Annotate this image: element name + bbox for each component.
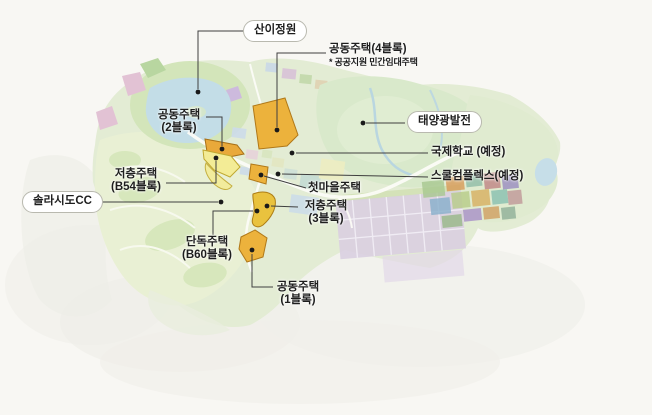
dot-detached-b60	[255, 209, 260, 214]
label-lowrise-block3-line1: 저층주택	[300, 200, 352, 213]
label-first-village: 첫마을주택	[308, 182, 361, 195]
dot-school-complex	[276, 172, 281, 177]
label-lowrise-block3: 저층주택 (3블록)	[300, 200, 352, 226]
label-detached-b60-line1: 단독주택	[179, 236, 235, 249]
dot-intl-school	[290, 151, 295, 156]
label-apt-block4: 공동주택(4블록) * 공공지원 민간임대주택	[329, 43, 418, 67]
label-apt-block4-note: * 공공지원 민간임대주택	[329, 57, 418, 67]
dot-lowrise-block3	[265, 204, 270, 209]
development-plan-map: 산이정원 공동주택(4블록) * 공공지원 민간임대주택 공동주택 (2블록) …	[0, 0, 652, 415]
dot-sani-garden	[196, 90, 201, 95]
label-apt-block4-title: 공동주택(4블록)	[329, 43, 418, 56]
dot-solar-power	[361, 121, 366, 126]
label-apt-block1-line1: 공동주택	[274, 281, 322, 294]
label-lowrise-b54-line2: (B54블록)	[107, 181, 165, 194]
label-apt-block2: 공동주택 (2블록)	[150, 109, 208, 135]
dot-apt-block1	[250, 248, 255, 253]
dot-apt-block2	[220, 147, 225, 152]
label-lowrise-b54-line1: 저층주택	[107, 168, 165, 181]
label-intl-school: 국제학교 (예정)	[431, 146, 505, 159]
label-apt-block1: 공동주택 (1블록)	[274, 281, 322, 307]
label-sani-garden: 산이정원	[243, 20, 307, 42]
label-apt-block2-line1: 공동주택	[150, 109, 208, 122]
label-solaseado-cc: 솔라시도CC	[22, 191, 103, 213]
label-detached-b60-line2: (B60블록)	[179, 249, 235, 262]
dot-first-village	[259, 173, 264, 178]
dot-apt-block4	[275, 128, 280, 133]
label-lowrise-b54: 저층주택 (B54블록)	[107, 168, 165, 194]
label-apt-block2-line2: (2블록)	[150, 122, 208, 135]
dot-solaseado-cc	[219, 200, 224, 205]
label-lowrise-block3-line2: (3블록)	[300, 213, 352, 226]
label-school-complex: 스쿨컴플렉스(예정)	[431, 170, 523, 183]
dot-lowrise-b54	[214, 156, 219, 161]
label-apt-block1-line2: (1블록)	[274, 294, 322, 307]
label-solar-power: 태양광발전	[407, 111, 482, 133]
label-detached-b60: 단독주택 (B60블록)	[179, 236, 235, 262]
